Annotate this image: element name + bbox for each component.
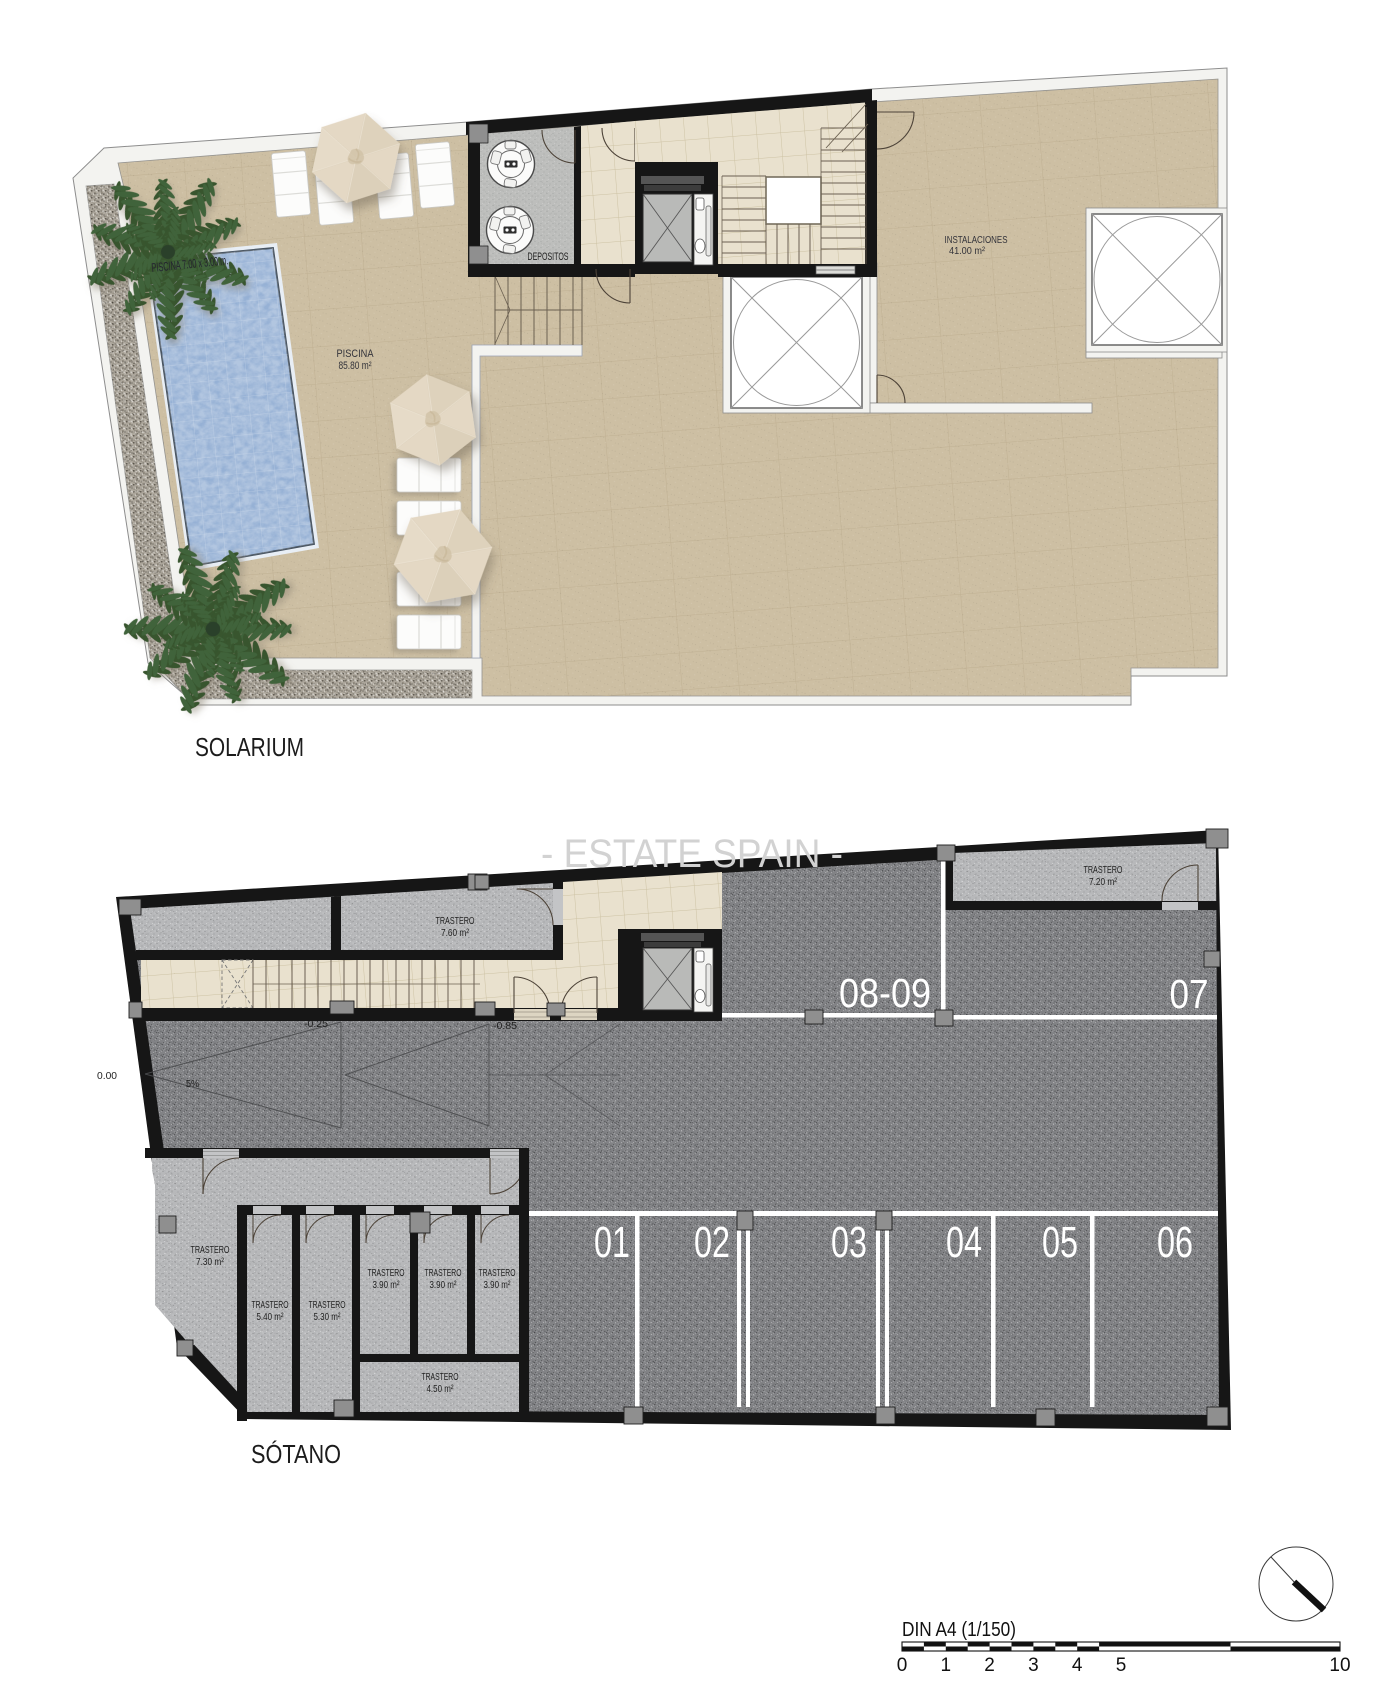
svg-text:TRASTERO: TRASTERO: [422, 1371, 459, 1383]
svg-text:TRASTERO: TRASTERO: [191, 1244, 230, 1256]
svg-text:3.90 m²: 3.90 m²: [484, 1279, 511, 1291]
svg-text:41.00 m²: 41.00 m²: [949, 245, 985, 257]
svg-text:0.00: 0.00: [97, 1071, 117, 1082]
svg-text:10: 10: [1329, 1655, 1350, 1676]
svg-text:5: 5: [1116, 1655, 1127, 1676]
svg-text:TRASTERO: TRASTERO: [425, 1267, 462, 1279]
svg-text:7.30 m²: 7.30 m²: [196, 1256, 224, 1268]
svg-text:DEPOSITOS: DEPOSITOS: [528, 251, 569, 263]
svg-text:03: 03: [831, 1218, 867, 1267]
svg-text:TRASTERO: TRASTERO: [479, 1267, 516, 1279]
svg-text:4: 4: [1072, 1655, 1083, 1676]
svg-text:5.30 m²: 5.30 m²: [314, 1311, 341, 1323]
svg-text:TRASTERO: TRASTERO: [1084, 864, 1123, 876]
svg-text:07: 07: [1170, 971, 1209, 1017]
svg-text:04: 04: [946, 1218, 982, 1267]
svg-text:-0.85: -0.85: [493, 1021, 517, 1032]
svg-text:4.50 m²: 4.50 m²: [427, 1383, 454, 1395]
svg-text:1: 1: [941, 1655, 952, 1676]
svg-text:3.90 m²: 3.90 m²: [373, 1279, 400, 1291]
svg-text:01: 01: [594, 1218, 630, 1267]
svg-text:SÓTANO: SÓTANO: [251, 1439, 341, 1469]
svg-text:02: 02: [694, 1218, 730, 1267]
svg-text:PISCINA: PISCINA: [337, 348, 375, 360]
svg-text:7.20 m²: 7.20 m²: [1089, 876, 1117, 888]
svg-text:TRASTERO: TRASTERO: [252, 1299, 289, 1311]
svg-text:06: 06: [1157, 1218, 1193, 1267]
svg-text:- ESTATE SPAIN -: - ESTATE SPAIN -: [541, 832, 843, 876]
svg-text:SOLARIUM: SOLARIUM: [195, 732, 304, 762]
svg-text:0: 0: [897, 1655, 908, 1676]
svg-text:85.80 m²: 85.80 m²: [339, 360, 372, 372]
svg-text:5.40 m²: 5.40 m²: [257, 1311, 284, 1323]
svg-text:08-09: 08-09: [839, 970, 931, 1016]
svg-text:5%: 5%: [186, 1079, 199, 1090]
svg-text:7.60 m²: 7.60 m²: [441, 927, 469, 939]
svg-text:TRASTERO: TRASTERO: [436, 915, 475, 927]
svg-text:DIN A4 (1/150): DIN A4 (1/150): [902, 1619, 1016, 1641]
svg-text:05: 05: [1042, 1218, 1078, 1267]
svg-text:2: 2: [984, 1655, 995, 1676]
svg-text:3.90 m²: 3.90 m²: [430, 1279, 457, 1291]
svg-text:TRASTERO: TRASTERO: [309, 1299, 346, 1311]
svg-text:3: 3: [1028, 1655, 1039, 1676]
svg-text:TRASTERO: TRASTERO: [368, 1267, 405, 1279]
